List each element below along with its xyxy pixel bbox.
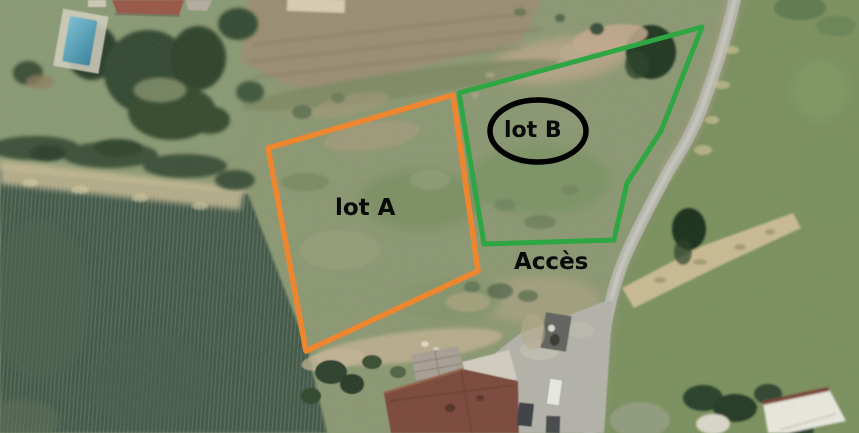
aerial-map: lot A lot B Accès [0, 0, 859, 433]
lot-a-label: lot A [335, 196, 396, 221]
lot-b-label: lot B [504, 119, 562, 143]
access-label: Accès [514, 250, 588, 275]
photo-grain-light [0, 0, 859, 433]
satellite-photo [0, 0, 859, 433]
